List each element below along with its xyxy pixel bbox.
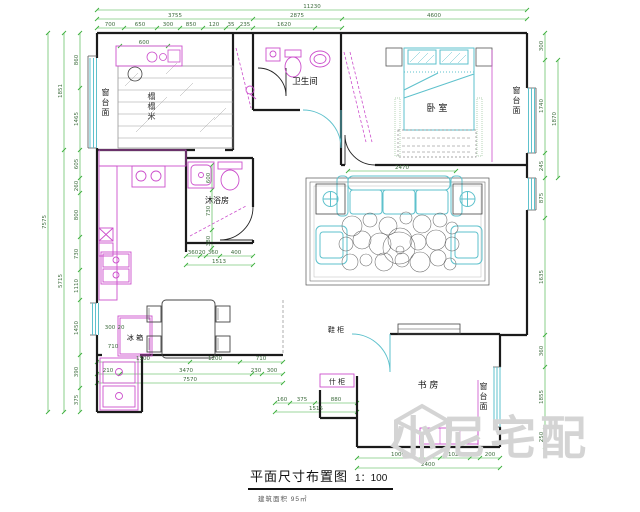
floor-plan-canvas: 卫生间 卧 室 沐浴房 书 房 冰 箱 鞋 柜 什 柜 11230 3755 2… bbox=[0, 0, 640, 512]
toilet-tank bbox=[285, 50, 301, 57]
dim: 5715 bbox=[58, 274, 64, 288]
drawing-title: 平面尺寸布置图 bbox=[250, 466, 348, 485]
dim: 300 bbox=[267, 368, 278, 374]
dim: 1620 bbox=[277, 22, 291, 28]
dim: 1110 bbox=[74, 279, 80, 293]
dim: 1855 bbox=[539, 390, 545, 404]
dim: 250 bbox=[539, 431, 545, 442]
bed-fringe-left bbox=[395, 98, 400, 156]
dim: 600 bbox=[206, 172, 212, 183]
dim: 390 bbox=[74, 366, 80, 377]
living-room-furniture bbox=[306, 176, 489, 285]
dim: 700 bbox=[105, 22, 116, 28]
dim: 800 bbox=[74, 209, 80, 220]
drawing-note: 建筑面积 95㎡ bbox=[258, 493, 393, 503]
dim: 1020 bbox=[448, 452, 462, 458]
bedroom-rug bbox=[398, 130, 476, 157]
bed-fringe-right bbox=[477, 98, 482, 156]
dim: 360 bbox=[208, 250, 219, 256]
dim: 2470 bbox=[395, 165, 409, 171]
bedroom-sill-label: 窗台面 bbox=[512, 86, 520, 116]
dim: 1635 bbox=[539, 270, 545, 284]
utility-sink bbox=[100, 358, 138, 410]
dim: 730 bbox=[74, 248, 80, 259]
dim: 2875 bbox=[290, 13, 304, 19]
bathroom-label: 卫生间 bbox=[292, 76, 318, 87]
dim: 1870 bbox=[552, 112, 558, 126]
dim: 300 bbox=[539, 40, 545, 51]
bathroom-inner-door-arc bbox=[258, 68, 286, 96]
dim: 210 bbox=[103, 368, 114, 374]
sofa-cushion bbox=[416, 190, 448, 214]
room-labels: 卫生间 卧 室 沐浴房 书 房 冰 箱 鞋 柜 什 柜 bbox=[127, 76, 448, 391]
dim: 1515 bbox=[309, 406, 323, 412]
dim: 880 bbox=[331, 397, 342, 403]
balcony-sill-label: 窗台面 bbox=[101, 88, 109, 118]
dim: 1200 bbox=[208, 356, 222, 362]
study-window bbox=[494, 367, 500, 427]
balcony-area bbox=[116, 46, 233, 148]
dining-window bbox=[93, 303, 99, 335]
bathroom-door-arc bbox=[303, 110, 341, 148]
dim: 600 bbox=[139, 40, 150, 46]
dim: 1740 bbox=[539, 99, 545, 113]
study-cabinet bbox=[420, 428, 478, 444]
dim: 650 bbox=[135, 22, 146, 28]
study-sill-label: 窗台面 bbox=[479, 382, 487, 412]
dining-furniture bbox=[147, 300, 230, 358]
toilet2-tank bbox=[218, 162, 242, 169]
balcony-window bbox=[90, 58, 97, 148]
dim: 4600 bbox=[427, 13, 441, 19]
dim: 1000 bbox=[391, 452, 405, 458]
dim-bottom-total: 7570 bbox=[183, 377, 197, 383]
dim: 200 bbox=[485, 452, 496, 458]
bathroom-fixtures bbox=[246, 48, 330, 99]
kitchen-counter-top bbox=[99, 150, 186, 166]
dim: 710 bbox=[108, 344, 119, 350]
bedroom-label: 卧 室 bbox=[427, 102, 448, 114]
basin-icon bbox=[128, 67, 142, 81]
nightstand-right bbox=[476, 48, 492, 66]
dim: 160 bbox=[277, 397, 288, 403]
dim: 245 bbox=[539, 160, 545, 171]
washer-icon bbox=[147, 52, 157, 62]
dim: 120 bbox=[209, 22, 220, 28]
dim: 300 bbox=[163, 22, 174, 28]
dim: 300 bbox=[105, 325, 116, 331]
entry-door-arc bbox=[352, 334, 390, 372]
stove-icon bbox=[132, 166, 165, 187]
windows bbox=[90, 58, 535, 427]
dim: 260 bbox=[74, 180, 80, 191]
shoe-cabinet-label: 鞋 柜 bbox=[328, 325, 344, 334]
tatami-hatch bbox=[125, 63, 226, 132]
shower-room-label: 沐浴房 bbox=[205, 195, 229, 205]
dim: 360 bbox=[539, 345, 545, 356]
fridge-label: 冰 箱 bbox=[127, 333, 143, 342]
dim: 710 bbox=[256, 356, 267, 362]
dim: 850 bbox=[186, 22, 197, 28]
dim: 235 bbox=[240, 22, 251, 28]
sofa-cushion bbox=[350, 190, 382, 214]
dim: 375 bbox=[74, 394, 80, 405]
dim: 400 bbox=[231, 250, 242, 256]
dining-table bbox=[162, 300, 215, 358]
tatami-label: 榻榻米 bbox=[147, 92, 155, 122]
hall-cabinet-label: 什 柜 bbox=[329, 377, 345, 386]
dim: 1851 bbox=[58, 84, 64, 98]
living-window bbox=[529, 178, 535, 210]
bedroom-window bbox=[529, 88, 535, 153]
doors bbox=[220, 68, 390, 372]
dim: 3755 bbox=[168, 13, 182, 19]
dim: 3470 bbox=[179, 368, 193, 374]
nightstand-left bbox=[386, 48, 402, 66]
dim: 35 bbox=[228, 22, 235, 28]
dim: 605 bbox=[74, 158, 80, 169]
sink-icon bbox=[310, 51, 330, 67]
study-label: 书 房 bbox=[418, 379, 439, 391]
dim: 1465 bbox=[74, 112, 80, 126]
sofa-cushion bbox=[383, 190, 415, 214]
dim: 1513 bbox=[212, 259, 226, 265]
bed bbox=[404, 48, 474, 130]
toilet-icon bbox=[285, 57, 301, 77]
dim: 1500 bbox=[136, 356, 150, 362]
tatami-platform bbox=[118, 66, 233, 148]
toilet2-icon bbox=[221, 170, 239, 190]
dim: 730 bbox=[206, 205, 212, 216]
dim: 20 bbox=[199, 250, 206, 256]
dim: 1450 bbox=[74, 321, 80, 335]
dim: 375 bbox=[297, 397, 308, 403]
swirl-rug bbox=[339, 212, 459, 272]
dim: 860 bbox=[74, 54, 80, 65]
dim: 100 bbox=[469, 452, 480, 458]
laundry-counter bbox=[116, 46, 182, 66]
dim-top-total: 11230 bbox=[303, 4, 321, 10]
walls bbox=[97, 33, 527, 447]
floor-plan-drawing: 卫生间 卧 室 沐浴房 书 房 冰 箱 鞋 柜 什 柜 11230 3755 2… bbox=[0, 0, 640, 512]
dim: 380 bbox=[206, 235, 212, 246]
drawing-scale: 1：100 bbox=[355, 469, 387, 484]
dim: 20 bbox=[118, 325, 125, 331]
dim: 2400 bbox=[421, 462, 435, 468]
dim: 875 bbox=[539, 192, 545, 203]
dim: 230 bbox=[251, 368, 262, 374]
dim-left-total: 7575 bbox=[42, 215, 48, 229]
bedroom-door-arc bbox=[345, 135, 375, 165]
title-block: 平面尺寸布置图 1：100 建筑面积 95㎡ bbox=[248, 466, 393, 503]
shower-room-fixtures bbox=[188, 162, 242, 190]
shower-door-arc bbox=[220, 207, 253, 240]
dim: 360 bbox=[188, 250, 199, 256]
